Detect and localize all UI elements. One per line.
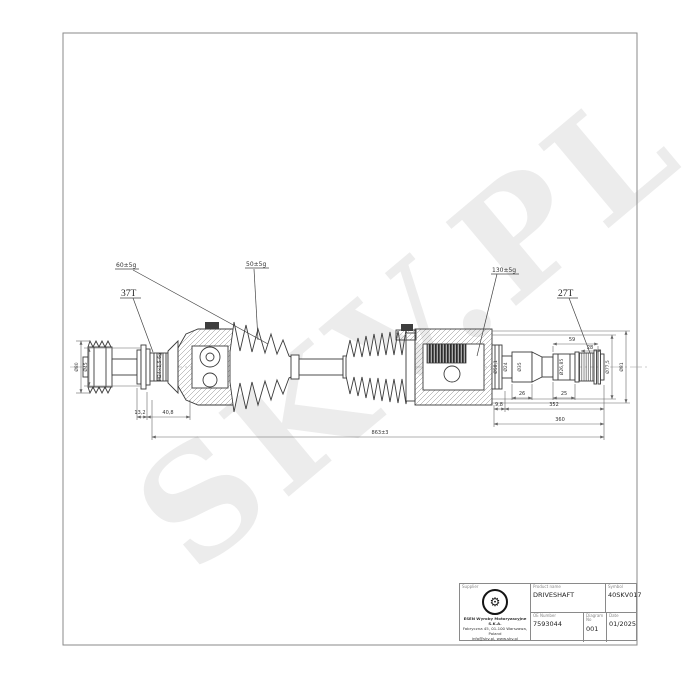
company-web: info@skv.pl, www.skv.pl — [460, 637, 530, 642]
sheet-frame — [63, 33, 637, 645]
dim-stub-len: 352 — [549, 402, 559, 408]
dim-left-joint-len: 40,8 — [162, 410, 173, 416]
inner-joint-cap — [401, 324, 413, 331]
dim-abs-ring-dia: Ø80 — [73, 362, 80, 371]
dim-stub-total-len: 360 — [555, 417, 565, 423]
dim-boot-seat-dia: Ø58,1 — [492, 360, 499, 374]
dim-step-dia: Ø35 — [516, 362, 523, 371]
company-logo: ⚙ — [482, 589, 508, 615]
dim-seat-len: 25 — [561, 391, 567, 397]
gear-icon: ⚙ — [490, 596, 501, 608]
dim-spline-b: 28 — [587, 345, 593, 351]
thread-callout: M24×1,5-6g — [157, 353, 163, 381]
outer-boot — [230, 322, 299, 412]
dim-total-len: 863±3 — [372, 430, 389, 436]
dim-left-seat-dia: Ø45 — [82, 362, 89, 371]
title-block-symbol-cell: Symbol 40SKV017 — [606, 584, 636, 613]
title-block-oe-cell: OE Number 7593044 — [531, 613, 584, 642]
grease-inner-label: 130±5g — [492, 267, 516, 274]
wheel-side-stub — [83, 341, 178, 393]
grease-outer-label: 60±5g — [116, 262, 136, 269]
date-value: 01/2025 — [607, 618, 636, 628]
dim-neck-dia: Ø24 — [502, 362, 509, 371]
title-block-diagram-cell: Diagram No 001 — [584, 613, 607, 642]
dim-spline-a: 59 — [569, 337, 575, 343]
company-address: ESEN Wyroby Motoryzacyjne S.K.A. Fabrycz… — [460, 617, 530, 641]
diagram-no-label: Diagram No — [584, 613, 606, 623]
inner-joint-spline-insert — [427, 344, 466, 363]
dim-tip-len: 9,8 — [495, 402, 503, 408]
drawing-page: SKV.PL — [0, 0, 700, 700]
inner-boot — [343, 330, 415, 404]
dim-washer-len: 13,2 — [134, 410, 145, 416]
dim-joint-outer-dia: Ø81 — [618, 362, 625, 371]
dim-step-len: 26 — [519, 391, 525, 397]
title-block-date-cell: Date 01/2025 — [607, 613, 636, 642]
outer-cv-joint — [178, 322, 234, 405]
dim-joint-inner-dia: Ø77,5 — [604, 360, 611, 374]
spline-count-left: 37T — [121, 289, 137, 299]
oe-number-value: 7593044 — [531, 618, 583, 628]
product-name-value: DRIVESHAFT — [531, 589, 605, 599]
spline-count-right: 27T — [558, 289, 574, 299]
output-spline-section — [579, 353, 594, 381]
title-block: Supplier ⚙ ESEN Wyroby Motoryzacyjne S.K… — [459, 583, 637, 641]
title-block-product-cell: Product name DRIVESHAFT — [531, 584, 606, 613]
intermediate-shaft — [299, 359, 343, 375]
outer-joint-cap — [205, 322, 219, 329]
symbol-value: 40SKV017 — [606, 589, 636, 599]
top-right-length-dims — [553, 344, 601, 352]
grease-mid-label: 50±5g — [246, 261, 266, 268]
title-block-supplier-cell: Supplier ⚙ ESEN Wyroby Motoryzacyjne S.K… — [460, 584, 531, 640]
diagram-no-value: 001 — [584, 623, 606, 633]
dim-spline-seat-dia: Ø26,85 — [558, 359, 565, 376]
